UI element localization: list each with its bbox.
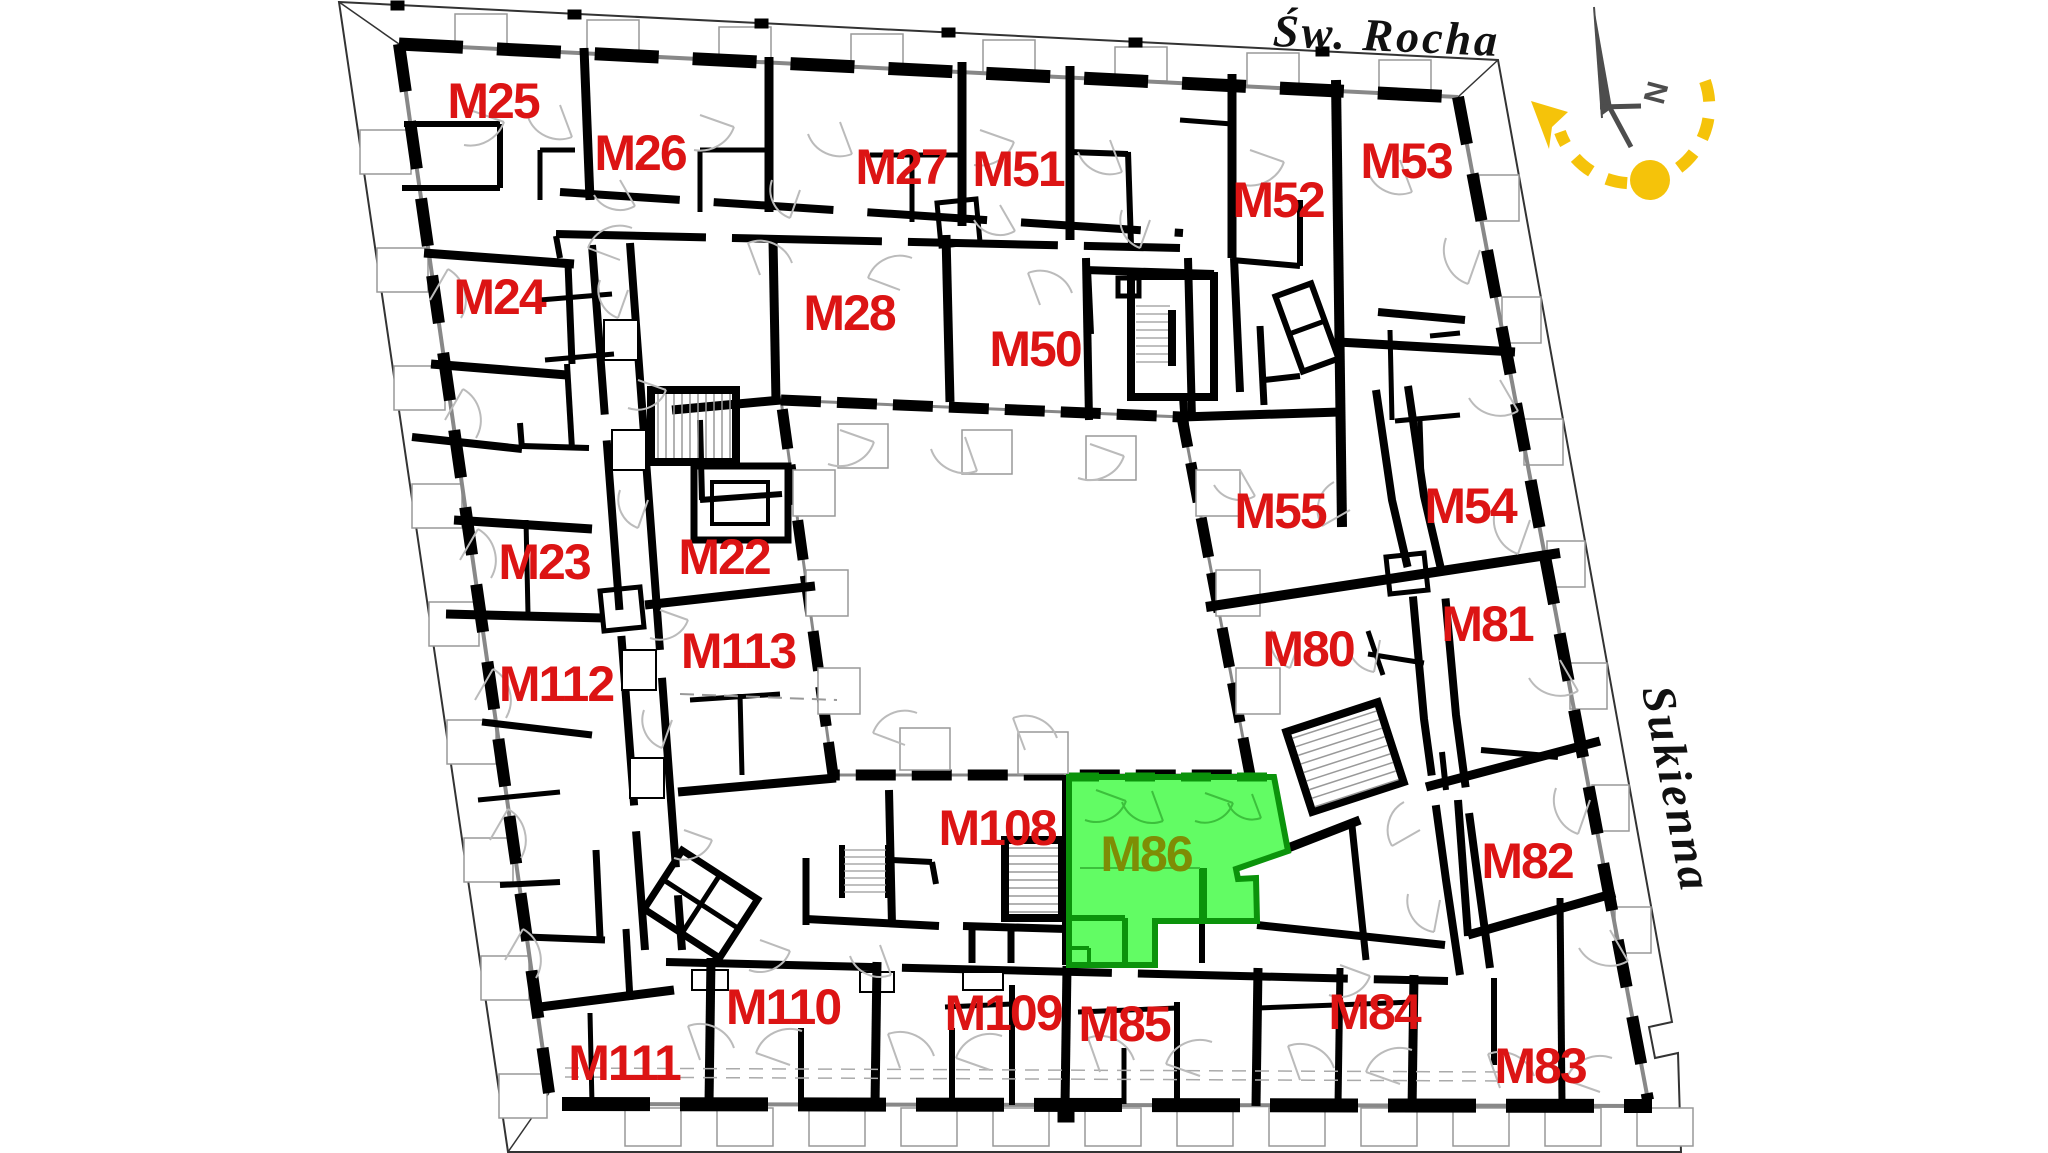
svg-text:M109: M109 <box>944 985 1061 1041</box>
svg-text:M112: M112 <box>499 656 614 712</box>
svg-text:M24: M24 <box>453 269 546 325</box>
svg-text:M55: M55 <box>1234 483 1326 539</box>
svg-text:M54: M54 <box>1424 478 1517 534</box>
svg-text:M110: M110 <box>726 979 841 1035</box>
svg-text:M85: M85 <box>1078 996 1170 1052</box>
svg-text:M108: M108 <box>938 800 1056 856</box>
svg-text:M22: M22 <box>678 529 769 585</box>
svg-text:M53: M53 <box>1360 133 1451 189</box>
svg-text:M26: M26 <box>594 125 685 181</box>
svg-text:M50: M50 <box>989 321 1080 377</box>
svg-text:M113: M113 <box>681 623 796 679</box>
svg-text:M80: M80 <box>1262 621 1353 677</box>
svg-text:M28: M28 <box>803 285 895 341</box>
svg-text:M52: M52 <box>1232 172 1323 228</box>
svg-text:M27: M27 <box>855 139 946 195</box>
svg-text:M25: M25 <box>447 73 539 129</box>
svg-text:M82: M82 <box>1481 833 1572 889</box>
svg-text:M111: M111 <box>568 1035 681 1091</box>
svg-text:M84: M84 <box>1328 984 1421 1040</box>
svg-text:M23: M23 <box>498 534 589 590</box>
svg-text:M51: M51 <box>972 141 1064 197</box>
svg-text:M81: M81 <box>1441 596 1533 652</box>
svg-text:Św. Rocha: Św. Rocha <box>1272 5 1501 66</box>
svg-text:M86: M86 <box>1100 826 1191 882</box>
svg-text:M83: M83 <box>1494 1038 1585 1094</box>
